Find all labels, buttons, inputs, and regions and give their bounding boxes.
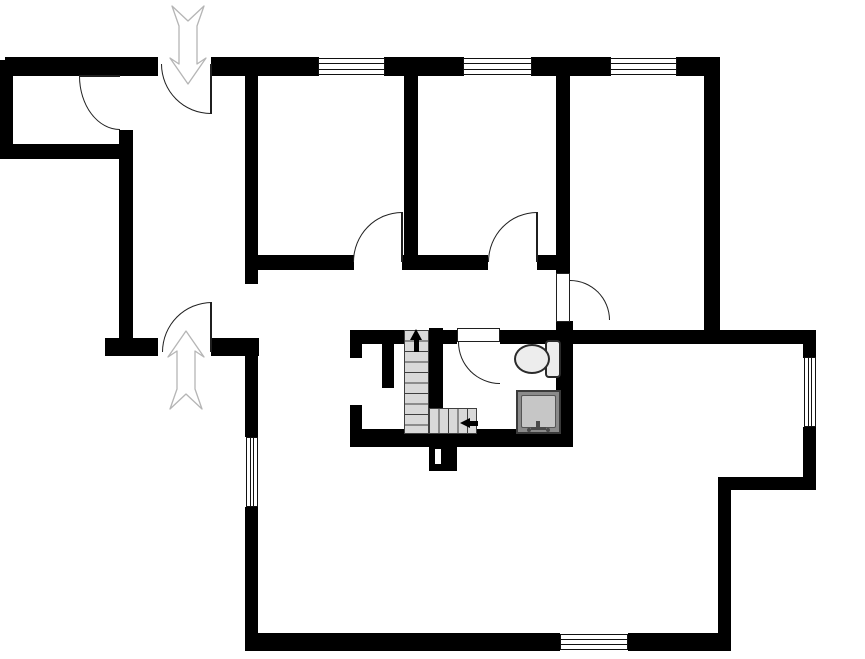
wall [105, 338, 158, 356]
wall [382, 344, 394, 388]
wall [402, 255, 488, 270]
bedroom-3-door-swing-arc [570, 280, 610, 320]
stairs-up-arrow-icon [410, 329, 422, 340]
stairs-left-arrow-icon [460, 418, 470, 428]
stairs-up-arrow-shaft [414, 340, 419, 352]
window [610, 58, 677, 75]
wall [119, 130, 133, 356]
wall [429, 328, 443, 409]
bedroom-1-door-leaf [401, 212, 403, 262]
chimney [429, 447, 457, 471]
wall [531, 57, 611, 76]
bathroom-door-leaf [457, 328, 500, 342]
wall [245, 338, 258, 437]
bedroom-2-door-leaf [536, 212, 538, 262]
wall [245, 57, 258, 284]
floor-plan-canvas [0, 0, 865, 659]
storage-room-door-leaf [79, 75, 120, 77]
wall [245, 633, 560, 651]
toilet-bowl [514, 344, 550, 374]
window [246, 437, 258, 507]
faucet-handle [527, 428, 531, 432]
window [804, 357, 816, 427]
main-entrance-door-swing-arc [161, 64, 211, 114]
bedroom-2-door-swing-arc [488, 212, 537, 262]
bedroom-1-door-swing-arc [353, 212, 402, 262]
wall [245, 255, 354, 270]
window [560, 634, 628, 650]
window-glazing [250, 437, 254, 507]
wall [803, 330, 816, 358]
wall [350, 344, 362, 358]
wall [718, 477, 816, 490]
window-glazing [463, 63, 532, 70]
wall [628, 633, 731, 651]
wall [443, 330, 457, 344]
window-glazing [808, 357, 812, 427]
wall [404, 57, 418, 257]
wall [245, 507, 258, 651]
storage-room-door-swing-arc [79, 76, 120, 130]
main-entrance-door-leaf [210, 64, 212, 114]
wall [704, 57, 720, 344]
window-glazing [318, 63, 385, 70]
faucet-handle [546, 428, 550, 432]
wall [350, 330, 404, 344]
rear-entrance-door-leaf [210, 302, 212, 352]
wall [5, 57, 158, 76]
rear-entrance-door-swing-arc [162, 302, 212, 352]
wall [0, 144, 133, 159]
stairs-left-arrow-shaft [469, 421, 478, 426]
wall [718, 477, 731, 651]
window [463, 58, 532, 75]
bedroom-3-door-leaf [556, 273, 570, 322]
bathroom-door-swing-arc [458, 342, 500, 384]
window-glazing [560, 639, 628, 645]
window-glazing [610, 63, 677, 70]
wall [556, 57, 570, 274]
chimney-slot [435, 449, 441, 464]
faucet-stem [536, 421, 540, 428]
window [318, 58, 385, 75]
wall [211, 57, 319, 76]
wall [384, 57, 464, 76]
